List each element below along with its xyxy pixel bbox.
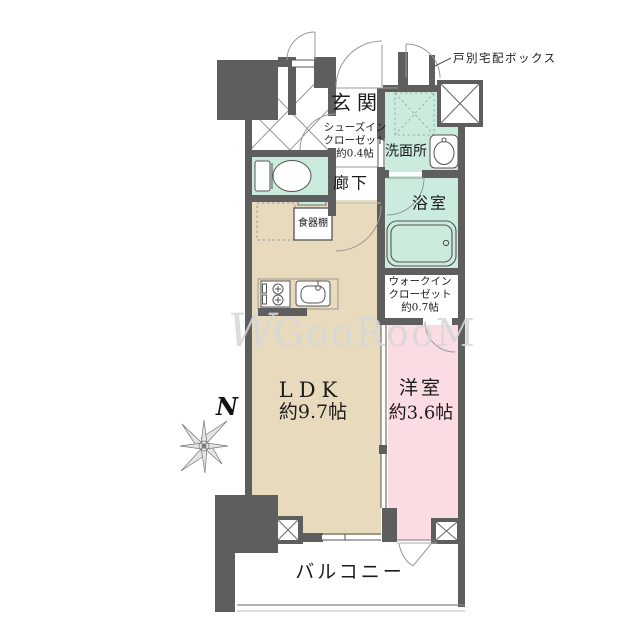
wall bbox=[215, 495, 278, 553]
shoes-closet-label-1: シューズイン bbox=[324, 122, 386, 133]
ldk-window bbox=[322, 535, 381, 540]
balcony-door-leaf bbox=[413, 544, 431, 566]
ldk-size-label: 約9.7帖 bbox=[279, 403, 347, 423]
watermark: WGooRooM bbox=[228, 303, 477, 357]
wall bbox=[382, 508, 397, 542]
toilet-fixture bbox=[255, 161, 311, 192]
wall bbox=[379, 445, 387, 454]
storage-door-arc bbox=[287, 32, 315, 60]
compass-rose bbox=[180, 420, 228, 473]
entrance-door-arc bbox=[336, 41, 382, 87]
delivery-box-label: 戸別宅配ボックス bbox=[453, 52, 557, 64]
genkan-label: 玄関 bbox=[331, 93, 383, 114]
watermark-text: GooRooM bbox=[273, 311, 476, 355]
wall bbox=[245, 150, 335, 157]
western-room-size-label: 約3.6帖 bbox=[389, 405, 454, 424]
wall bbox=[245, 195, 335, 202]
north-label: N bbox=[216, 392, 238, 421]
balcony-label: バルコニー bbox=[295, 563, 405, 583]
window bbox=[292, 60, 314, 67]
wic-label-1: ウォークイン bbox=[389, 276, 452, 287]
wall bbox=[217, 60, 278, 120]
wic-label-2: クローゼット bbox=[389, 289, 452, 300]
western-room bbox=[388, 325, 458, 540]
hallway-label: 廊下 bbox=[333, 176, 369, 193]
ldk-room bbox=[252, 200, 381, 535]
western-room-label: 洋室 bbox=[399, 379, 443, 399]
washbasin-fixture bbox=[430, 135, 458, 168]
ldk-label: LDK bbox=[279, 379, 343, 401]
shoes-closet-label-2: クローゼット bbox=[324, 135, 387, 146]
bathroom-label: 浴室 bbox=[412, 196, 448, 213]
shoes-closet-label-3: 約0.4帖 bbox=[336, 148, 374, 159]
wall bbox=[314, 57, 336, 88]
watermark-prefix: W bbox=[228, 303, 277, 357]
wall bbox=[383, 268, 458, 275]
floorplan: 玄関 シューズイン クローゼット 約0.4帖 廊下 洗面所 浴室 ウォークイン … bbox=[0, 0, 640, 640]
cupboard-label: 食器棚 bbox=[298, 219, 328, 230]
wall bbox=[422, 170, 458, 178]
washroom-label: 洗面所 bbox=[385, 145, 427, 160]
wall bbox=[215, 553, 235, 612]
bathroom-room bbox=[383, 176, 458, 270]
